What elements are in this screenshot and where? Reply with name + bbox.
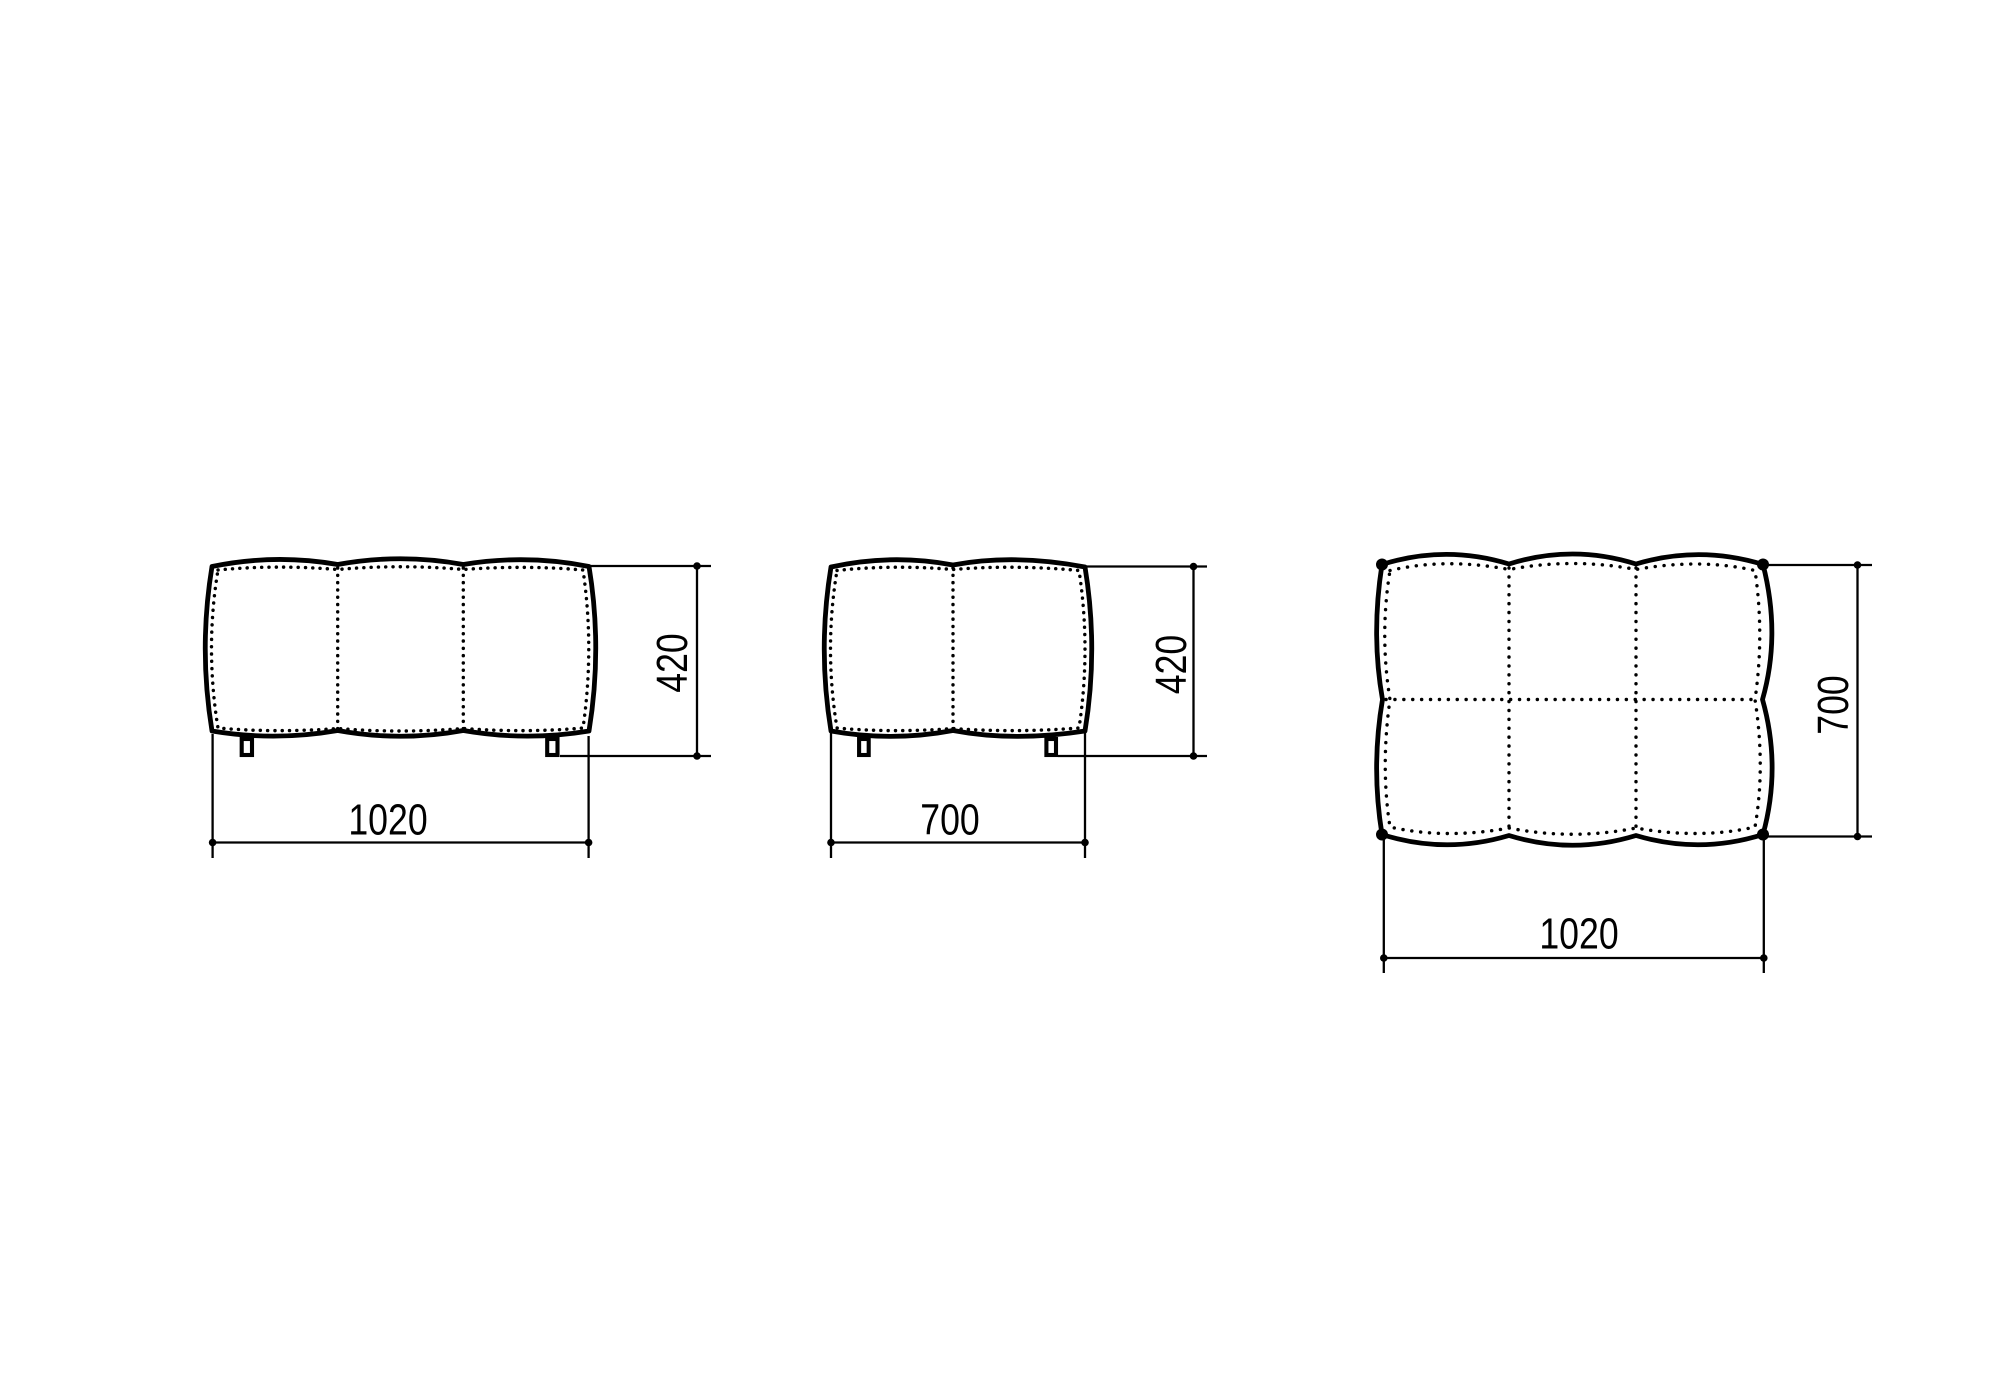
svg-text:1020: 1020	[1539, 910, 1618, 958]
svg-text:420: 420	[649, 633, 697, 693]
svg-text:700: 700	[920, 796, 980, 844]
svg-text:1020: 1020	[348, 796, 427, 844]
svg-text:700: 700	[1810, 675, 1858, 735]
svg-text:420: 420	[1148, 635, 1196, 695]
